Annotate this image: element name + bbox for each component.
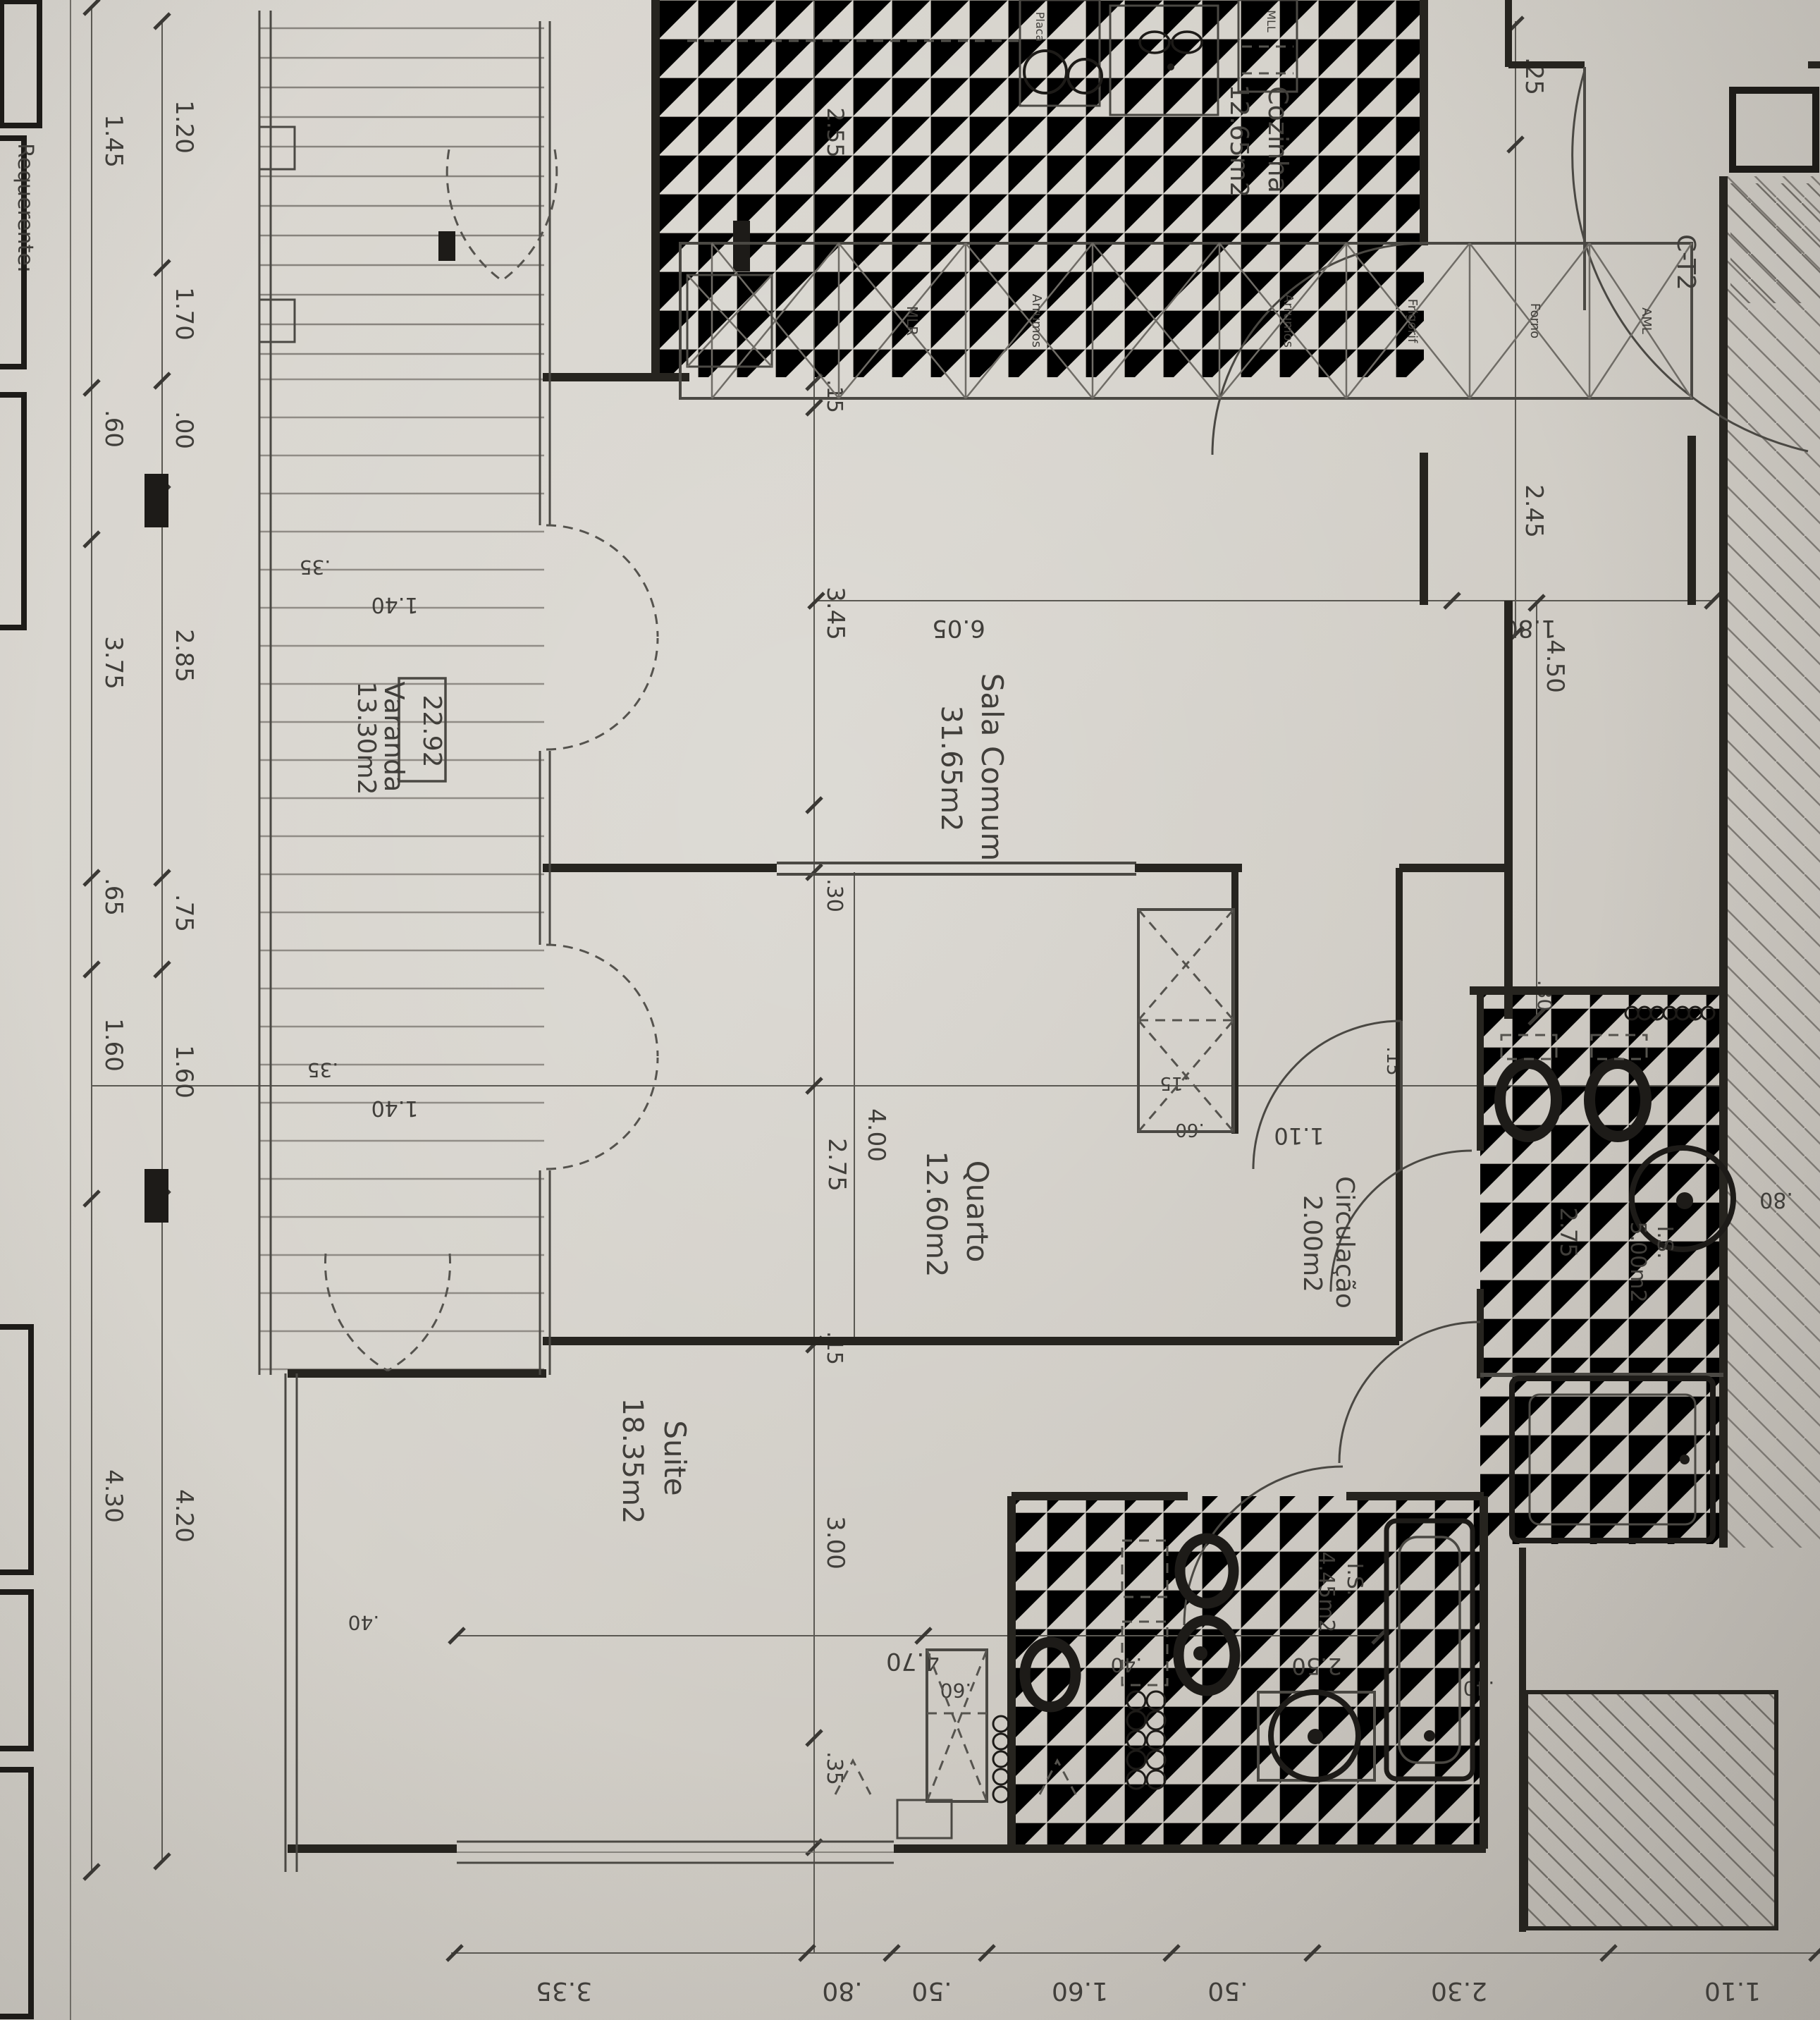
dim-left-inner-0: 1.20 <box>170 100 198 154</box>
balcony-door1-leaf <box>546 638 658 749</box>
dim-left-inner-4: .75 <box>170 894 198 932</box>
balcony-door2-leaf <box>546 945 658 1056</box>
dim-left-outer-5: 4.30 <box>99 1469 128 1523</box>
dim-quarto-1: 4.00 <box>862 1108 890 1162</box>
suite-side-unit <box>897 1800 952 1838</box>
requerente-label: Requerente: <box>13 143 37 273</box>
dim-bottom-6: 1.10 <box>1704 1976 1761 2005</box>
dim-quarto-2: 1.10 <box>1274 1122 1324 1149</box>
unit-label-forno: Forno <box>1527 303 1542 338</box>
washbasin-drain <box>1308 1729 1323 1744</box>
room-label-sala-area: 31.65m2 <box>935 706 967 832</box>
balcony-door1-leaf <box>546 525 658 637</box>
dim-bath1-1: .30 <box>1533 980 1556 1012</box>
room-label-quarto-name: Quarto <box>960 1161 995 1263</box>
dim-quarto-0: 2.75 <box>823 1138 851 1192</box>
room-label-circulacao-area: 2.00m2 <box>1298 1195 1327 1292</box>
dim-suite-2: .35 <box>822 1751 847 1785</box>
level-mark-value: 22.92 <box>417 694 446 767</box>
dim-left-inner-5: 1.60 <box>170 1045 198 1098</box>
unit-label-arrumos1: Arrumos <box>1029 294 1044 348</box>
dim-sala-4: 4.50 <box>1541 639 1569 693</box>
unit-label-frigorif: Frigorif <box>1405 299 1420 343</box>
dim-sala-0: .15 <box>822 379 847 413</box>
dim-top-right-1: 2.45 <box>1520 484 1548 538</box>
dim-varanda-4: .40 <box>348 1611 380 1634</box>
dim-sala-2: 6.05 <box>932 614 985 642</box>
dim-kitchen-left: 2.55 <box>822 107 849 157</box>
dim-bottom-2: .50 <box>911 1976 952 2005</box>
stairwell-crosshatch <box>1730 183 1820 303</box>
cooktop-label: Placa <box>1033 12 1047 42</box>
dim-bottom-4: .50 <box>1207 1976 1248 2005</box>
radiator-icon <box>993 1716 1009 1802</box>
dim-varanda-2: .35 <box>307 1058 339 1082</box>
floor-plan-photo: Requerente: <box>0 0 1820 2020</box>
balcony-deck-planks <box>259 363 544 1373</box>
unit-label-mlr: MLR <box>904 306 921 336</box>
dim-bath2-1: .40 <box>1111 1653 1143 1677</box>
dim-bottom-1: .80 <box>822 1976 862 2005</box>
dim-bath2-3: .40 <box>1463 1677 1495 1700</box>
dim-sala-5: .30 <box>822 879 847 912</box>
dim-left-outer-1: .60 <box>99 410 128 448</box>
dim-bottom-0: 3.35 <box>536 1976 592 2005</box>
unit-code-label: C-T2 <box>1671 234 1700 290</box>
room-label-cozinha-area: 12.65m2 <box>1224 84 1253 197</box>
room-label-sala-name: Sala Comum <box>975 673 1009 862</box>
room-label-varanda-name: Varanda <box>379 682 410 792</box>
bathtub-drain <box>1424 1730 1435 1742</box>
dim-bath2-0: 2.50 <box>1291 1653 1341 1679</box>
washbasin-drain <box>1676 1192 1693 1209</box>
room-label-suite-name: Suite <box>658 1420 692 1495</box>
room-label-cozinha-name: Cozinha <box>1262 86 1293 193</box>
dishwasher-label: MLL <box>1265 10 1278 32</box>
dim-left-inner-6: 4.20 <box>170 1489 198 1543</box>
dim-left-inner-2: .00 <box>170 411 198 449</box>
dim-sala-1: 3.45 <box>821 587 849 640</box>
balcony-door2-leaf <box>546 1058 658 1169</box>
dim-left-inner-3: 2.85 <box>170 629 198 682</box>
floor-plan-drawing: Requerente: <box>0 0 1820 2020</box>
dim-left-outer-3: .65 <box>99 878 128 916</box>
dim-varanda-1: 1.40 <box>371 592 419 617</box>
room-label-quarto-area: 12.60m2 <box>920 1151 952 1278</box>
terrace-hatch <box>1526 1692 1776 1928</box>
sink-tap-icon <box>1167 63 1174 71</box>
dim-varanda-0: .35 <box>300 556 331 579</box>
room-label-suite-area: 18.35m2 <box>616 1398 648 1524</box>
room-label-is1-area: 5.00m2 <box>1625 1221 1650 1302</box>
dim-suite-0: .15 <box>822 1331 847 1365</box>
dim-bottom-5: 2.30 <box>1431 1976 1487 2005</box>
stair-treads <box>259 13 544 363</box>
title-block-fragments: Requerente: <box>0 0 70 2020</box>
stairwell-hatch <box>1727 176 1820 1548</box>
bedroom-closet <box>1138 910 1234 1132</box>
dim-left-inner-1: 1.70 <box>170 287 198 341</box>
dim-left-outer-0: 1.45 <box>99 114 128 168</box>
unit-label-arrumos2: Arrumos <box>1281 294 1296 348</box>
dim-left-outer-4: 1.60 <box>99 1018 128 1072</box>
unit-label-aml: AML <box>1639 307 1654 334</box>
room-label-is2-area: 4.45m2 <box>1314 1551 1339 1632</box>
room-label-circulacao-name: Circulação <box>1330 1176 1359 1309</box>
dim-quarto-4: .60 <box>1175 1119 1204 1140</box>
room-label-is1-name: I.S. <box>1652 1226 1677 1259</box>
dim-bath1-2: .80 <box>1759 1187 1793 1212</box>
dim-bath1-0: 2.75 <box>1555 1207 1582 1257</box>
room-label-varanda-area: 13.30m2 <box>352 681 381 795</box>
dim-left-outer-2: 3.75 <box>99 636 128 690</box>
dim-suite-1: 3.00 <box>821 1516 849 1569</box>
room-label-is2-name: I.S. <box>1342 1563 1367 1596</box>
dim-varanda-3: 1.40 <box>371 1096 419 1120</box>
bathroom2-tile-floor <box>1012 1496 1484 1849</box>
dim-bottom-3: 1.60 <box>1052 1976 1108 2005</box>
